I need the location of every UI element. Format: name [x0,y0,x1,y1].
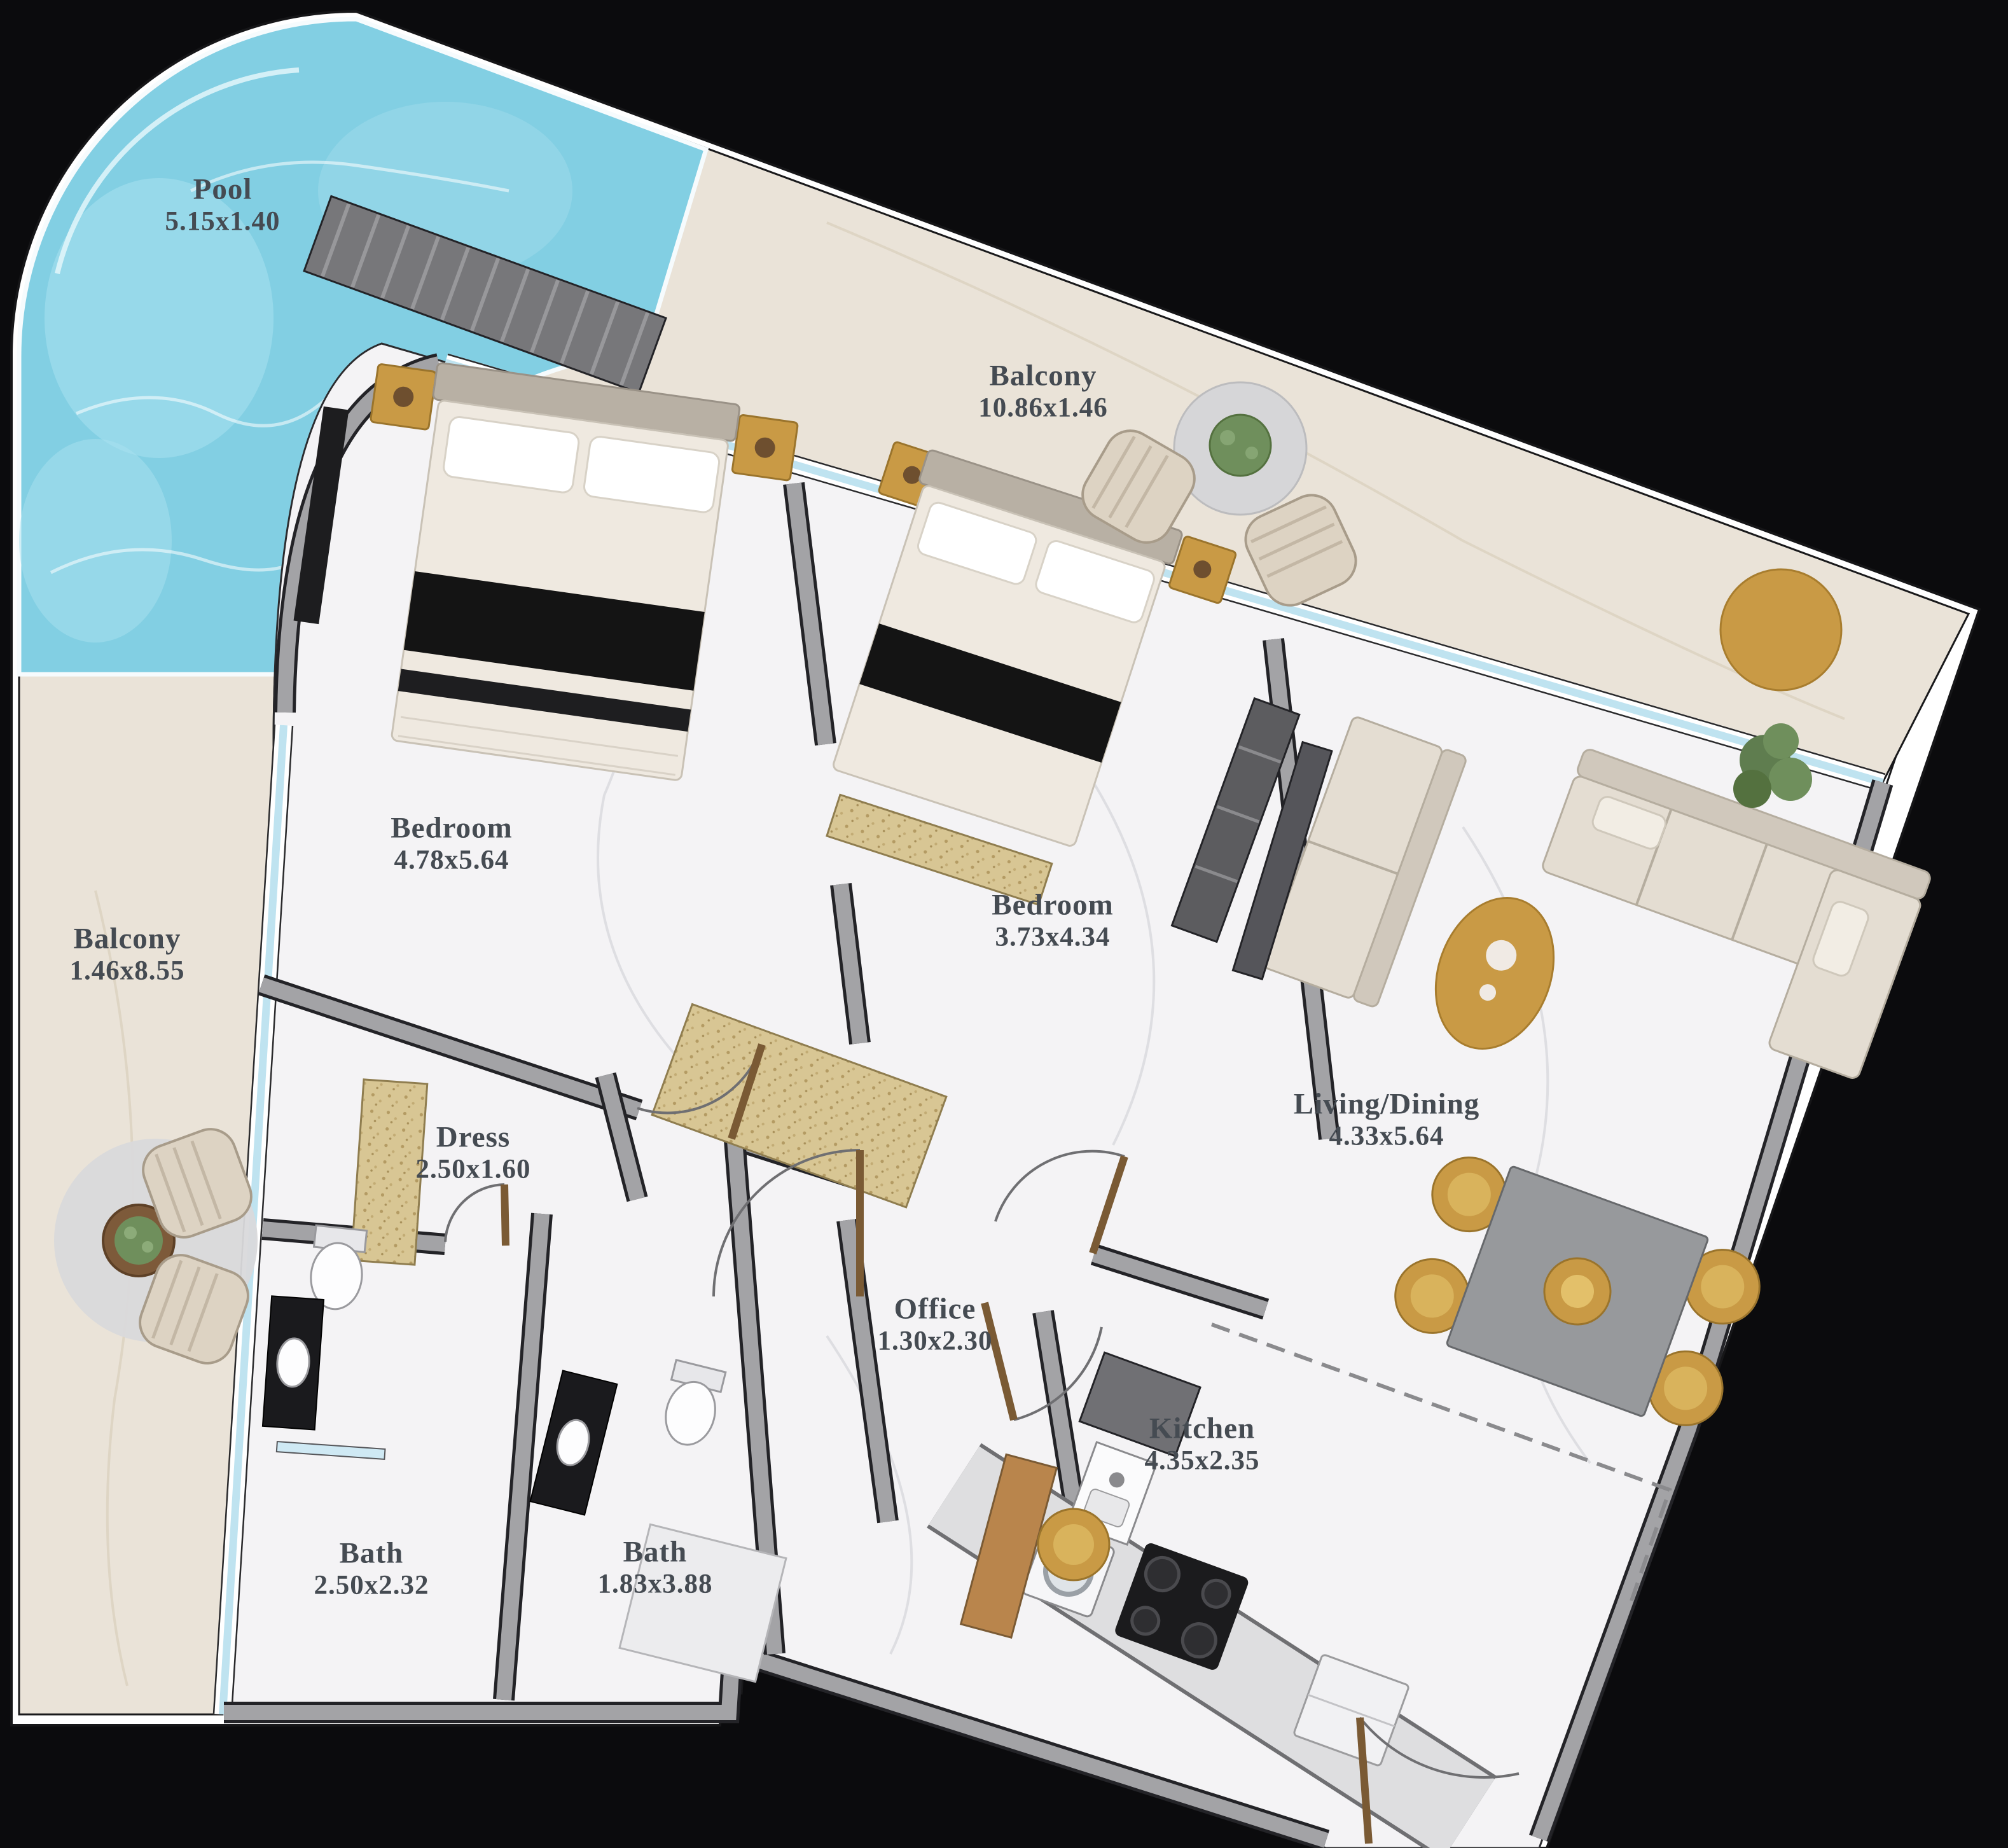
room-label-balcony-left: Balcony 1.46x8.55 [70,922,185,987]
room-label-office: Office 1.30x2.30 [878,1293,993,1357]
room-dims: 4.78x5.64 [391,845,513,875]
room-name: Living/Dining [1294,1088,1480,1122]
room-dims: 4.35x2.35 [1145,1445,1260,1476]
room-dims: 1.46x8.55 [70,955,185,986]
room-dims: 4.33x5.64 [1294,1121,1480,1151]
washbasin-bath-1 [263,1296,324,1429]
room-name: Pool [165,173,280,207]
office-chair [1038,1509,1109,1580]
room-label-living-dining: Living/Dining 4.33x5.64 [1294,1088,1480,1152]
room-name: Bedroom [391,812,513,845]
room-dims: 5.15x1.40 [165,206,280,237]
room-label-bedroom-1: Bedroom 4.78x5.64 [391,812,513,876]
side-table-gold [1721,569,1841,690]
floor-plan: Pool 5.15x1.40 Balcony 10.86x1.46 Bedroo… [0,0,2008,1848]
room-dims: 1.83x3.88 [598,1569,713,1599]
room-dims: 1.30x2.30 [878,1326,993,1356]
room-dims: 2.50x2.32 [314,1570,429,1601]
room-name: Kitchen [1145,1412,1260,1446]
room-name: Dress [416,1121,531,1155]
room-name: Bedroom [992,889,1114,922]
room-label-bath-1: Bath 2.50x2.32 [314,1537,429,1601]
room-name: Bath [314,1537,429,1571]
room-dims: 2.50x1.60 [416,1154,531,1185]
room-label-balcony-top: Balcony 10.86x1.46 [978,359,1108,424]
room-label-dress: Dress 2.50x1.60 [416,1121,531,1185]
room-name: Office [878,1293,993,1326]
room-name: Bath [598,1536,713,1569]
room-label-bath-2: Bath 1.83x3.88 [598,1536,713,1600]
room-dims: 10.86x1.46 [978,393,1108,423]
room-name: Balcony [70,922,185,956]
room-label-bedroom-2: Bedroom 3.73x4.34 [992,889,1114,953]
room-dims: 3.73x4.34 [992,922,1114,952]
room-label-pool: Pool 5.15x1.40 [165,173,280,237]
room-name: Balcony [978,359,1108,393]
room-label-kitchen: Kitchen 4.35x2.35 [1145,1412,1260,1476]
